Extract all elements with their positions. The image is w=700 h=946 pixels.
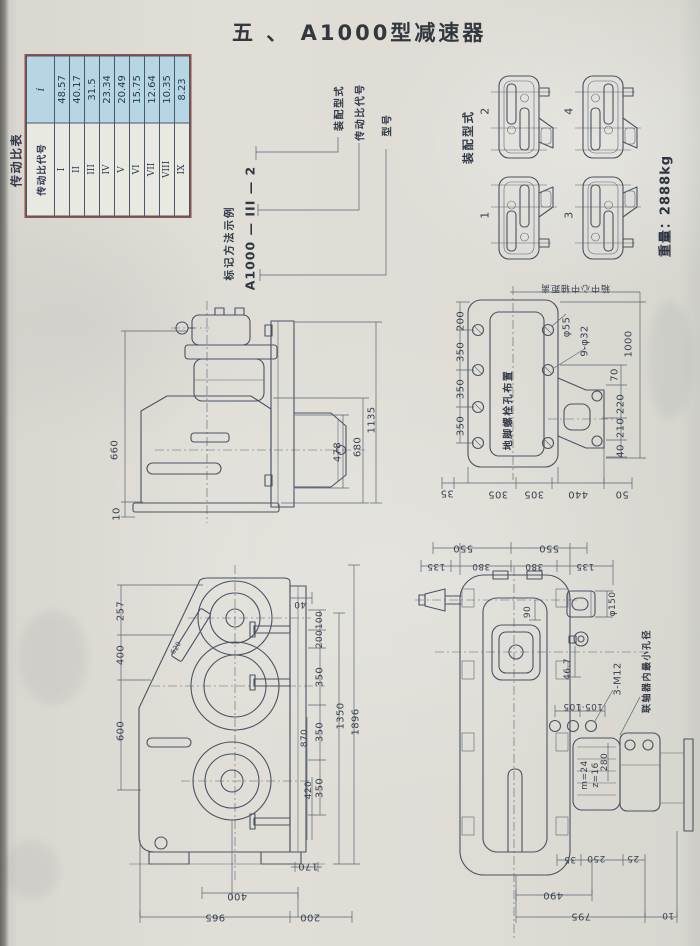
dim-plan-40: 40 (616, 444, 627, 458)
weight-note: 重量：2888kg (655, 155, 674, 257)
dim-top-380a: 380 (472, 561, 490, 571)
dim-top-135b: 135 (576, 561, 594, 571)
dim-plan-350c: 350 (456, 416, 467, 436)
dim-plan-50: 50 (615, 489, 629, 500)
dim-plan-phi55: φ55 (562, 317, 573, 338)
assembly-type-1-label: 1 (479, 211, 492, 218)
dim-side-1350: 1350 (336, 702, 347, 729)
assembly-diagram-4 (575, 70, 641, 165)
dim-side-350a: 350 (315, 667, 326, 687)
dim-side-40: 40 (294, 599, 306, 609)
table-row: VIII10.35 (159, 56, 174, 216)
ratio-table-title: 传动比表 (8, 133, 25, 187)
table-row: II40.17 (69, 56, 84, 216)
front-view-drawing (95, 295, 395, 530)
dim-front-660: 660 (110, 440, 121, 460)
dim-plan-70: 70 (610, 368, 621, 382)
ratio-table: 传动比代号 i I48.57 II40.17 III31.5 IV23.34 V… (26, 78, 189, 193)
dim-top-46-7: 46.7 (563, 658, 573, 680)
dim-plan-305b: 305 (524, 489, 544, 500)
assembly-type-4-label: 4 (563, 107, 576, 114)
dim-side-350c: 350 (315, 778, 326, 798)
dim-side-170: 170 (298, 861, 318, 872)
dim-front-1135: 1135 (367, 406, 378, 433)
table-row: I48.57 (54, 56, 69, 216)
dim-front-478: 478 (333, 442, 344, 462)
dim-front-10: 10 (112, 507, 123, 521)
dim-top-380b: 380 (525, 561, 543, 571)
top-view-drawing (415, 525, 700, 945)
dim-top-m24: m=24 (580, 760, 590, 789)
dim-side-965: 965 (205, 912, 225, 923)
dim-side-1896: 1896 (351, 708, 362, 735)
dim-side-200b: 200 (300, 912, 320, 923)
table-row: VI15.75 (129, 56, 144, 216)
bolt-plan-drawing (440, 278, 700, 508)
dim-top-490: 490 (543, 890, 563, 901)
ratio-col-header: 传动比代号 (26, 122, 54, 215)
scanned-drawing-page: 五 、 A1000型减速器 传动比表 传动比代号 i I48.57 II40.1… (0, 0, 700, 946)
dim-side-400b: 400 (227, 891, 247, 902)
dim-top-10: 10 (662, 910, 674, 920)
dim-top-3-M12: 3-M12 (613, 662, 624, 695)
dim-side-100: 100 (315, 611, 325, 629)
table-row: IV23.34 (99, 56, 114, 216)
dim-top-105x105: 105·105 (563, 701, 603, 711)
ratio-symbol: i (26, 56, 54, 123)
dim-side-400: 400 (116, 645, 127, 665)
dim-side-200: 200 (315, 630, 325, 648)
dim-top-550a: 550 (453, 543, 473, 554)
dim-side-870: 870 (300, 729, 310, 747)
dim-top-35: 35 (564, 854, 576, 864)
assembly-diagram-1 (491, 170, 557, 265)
dim-side-350b: 350 (315, 722, 326, 742)
assembly-diagram-3 (575, 170, 641, 265)
dim-top-250: 250 (587, 853, 605, 863)
dim-plan-1000: 1000 (624, 330, 635, 357)
dim-side-257: 257 (116, 601, 127, 621)
assembly-type-2-label: 2 (479, 107, 492, 114)
assembly-type-3-label: 3 (563, 211, 576, 218)
dim-plan-9xphi32: 9-φ32 (580, 325, 591, 356)
page-title: 五 、 A1000型减速器 (232, 17, 486, 47)
plan-area-label: 地脚螺栓孔布置 (500, 370, 515, 451)
ink-bleed-smudge (18, 610, 88, 705)
dim-plan-305a: 305 (488, 489, 508, 500)
dim-plan-350a: 350 (456, 342, 467, 362)
dim-top-phi150: φ150 (608, 592, 618, 617)
dim-side-600: 600 (116, 721, 127, 741)
table-row: VII12.64 (144, 56, 159, 216)
dim-top-280: 280 (600, 753, 610, 771)
dim-side-420: 420 (304, 781, 314, 799)
dim-plan-350b: 350 (456, 379, 467, 399)
ink-bleed-smudge (4, 840, 59, 900)
dim-top-25: 25 (627, 853, 639, 863)
side-view-drawing (93, 550, 378, 935)
top-coupling-label: 联轴器内最小孔径 (640, 629, 653, 713)
dim-front-680: 680 (353, 437, 364, 457)
dim-plan-440: 440 (568, 489, 588, 500)
dim-top-90: 90 (523, 606, 533, 618)
dim-plan-200: 200 (456, 311, 467, 331)
dim-plan-220: 220 (616, 394, 627, 414)
dim-top-550b: 550 (539, 543, 559, 554)
dim-top-795: 795 (571, 911, 591, 922)
dim-top-135a: 135 (427, 561, 445, 571)
plan-top-label: 箱中心中轴距离 (540, 283, 610, 296)
table-row: III31.5 (84, 56, 99, 216)
assembly-caption: 装配型式 (460, 110, 476, 164)
dim-plan-210: 210 (616, 418, 627, 438)
dim-plan-35: 35 (440, 488, 454, 499)
marking-leader-lines (230, 85, 400, 295)
assembly-diagram-2 (491, 70, 557, 165)
table-row: V20.49 (114, 56, 129, 216)
table-row: IX8.23 (174, 56, 189, 216)
